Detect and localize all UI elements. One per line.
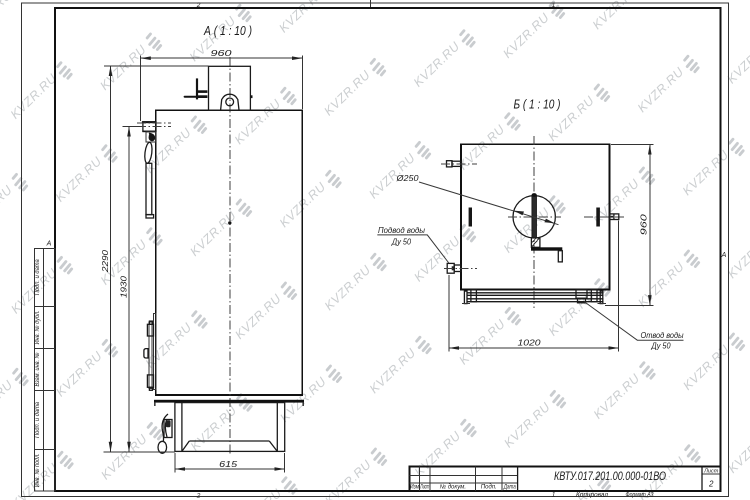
svg-text:Лист: Лист	[703, 468, 719, 474]
svg-text:Изм: Изм	[410, 485, 419, 491]
svg-text:А: А	[721, 252, 727, 259]
svg-text:Б ( 1 : 10 ): Б ( 1 : 10 )	[514, 98, 561, 112]
svg-text:1930: 1930	[119, 275, 128, 298]
svg-text:2: 2	[708, 480, 714, 489]
svg-text:Взам. инв. №: Взам. инв. №	[34, 352, 41, 386]
svg-text:Подвод воды: Подвод воды	[378, 226, 425, 235]
svg-text:Ду 50: Ду 50	[391, 238, 411, 247]
svg-text:2: 2	[196, 493, 201, 500]
svg-text:615: 615	[219, 460, 238, 469]
svg-text:Ду 50: Ду 50	[651, 342, 671, 351]
svg-text:Подп.: Подп.	[481, 485, 497, 491]
svg-text:Отвод воды: Отвод воды	[641, 331, 684, 340]
svg-text:960: 960	[211, 49, 233, 58]
svg-text:1: 1	[552, 492, 556, 499]
svg-text:Подп. и дата: Подп. и дата	[35, 259, 41, 296]
svg-text:Формат А3: Формат А3	[626, 492, 654, 499]
svg-text:А ( 1 : 10 ): А ( 1 : 10 )	[203, 24, 252, 38]
svg-text:Копировал: Копировал	[576, 492, 608, 499]
svg-text:Дата: Дата	[503, 485, 516, 491]
svg-text:960: 960	[640, 213, 649, 235]
svg-text:Инв. № дубл.: Инв. № дубл.	[34, 310, 41, 344]
svg-text:Инв. № подл.: Инв. № подл.	[34, 453, 41, 487]
svg-text:А: А	[46, 241, 52, 248]
svg-text:1020: 1020	[518, 338, 542, 347]
svg-text:Лист: Лист	[420, 485, 430, 491]
svg-text:Ø250: Ø250	[395, 174, 419, 183]
svg-text:2290: 2290	[101, 249, 110, 273]
svg-text:КВТУ.017.201.00.000-01ВО: КВТУ.017.201.00.000-01ВО	[554, 471, 666, 483]
svg-text:№ докум.: № докум.	[440, 484, 466, 491]
svg-text:Подп. и дата: Подп. и дата	[35, 401, 41, 438]
